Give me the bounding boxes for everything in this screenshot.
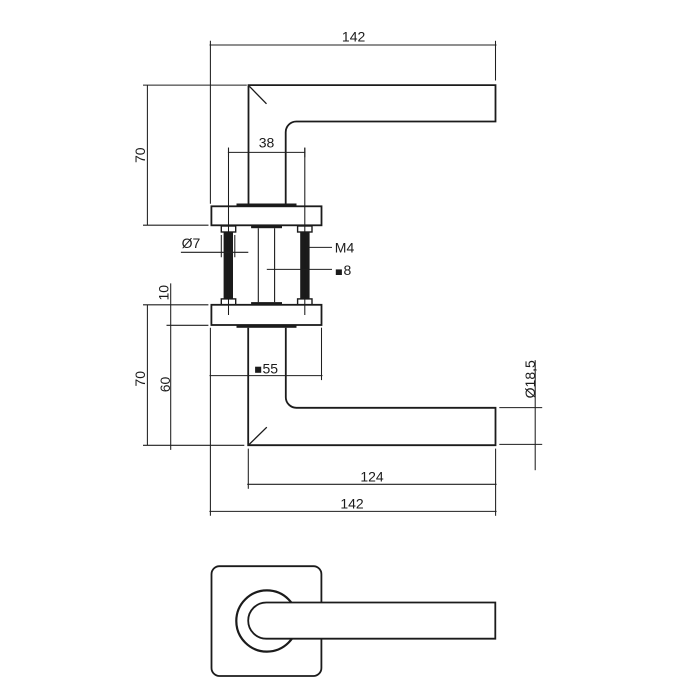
svg-text:Ø18,5: Ø18,5 bbox=[522, 360, 538, 398]
svg-text:60: 60 bbox=[157, 377, 173, 393]
svg-text:142: 142 bbox=[342, 29, 366, 45]
svg-text:10: 10 bbox=[155, 285, 171, 301]
svg-text:55: 55 bbox=[263, 361, 279, 377]
svg-text:8: 8 bbox=[344, 262, 352, 278]
svg-text:142: 142 bbox=[340, 496, 364, 512]
svg-text:M4: M4 bbox=[335, 239, 355, 255]
svg-text:38: 38 bbox=[259, 135, 275, 151]
svg-text:70: 70 bbox=[132, 147, 148, 163]
svg-text:124: 124 bbox=[360, 469, 384, 485]
svg-text:70: 70 bbox=[132, 371, 148, 387]
svg-text:Ø7: Ø7 bbox=[182, 235, 201, 251]
